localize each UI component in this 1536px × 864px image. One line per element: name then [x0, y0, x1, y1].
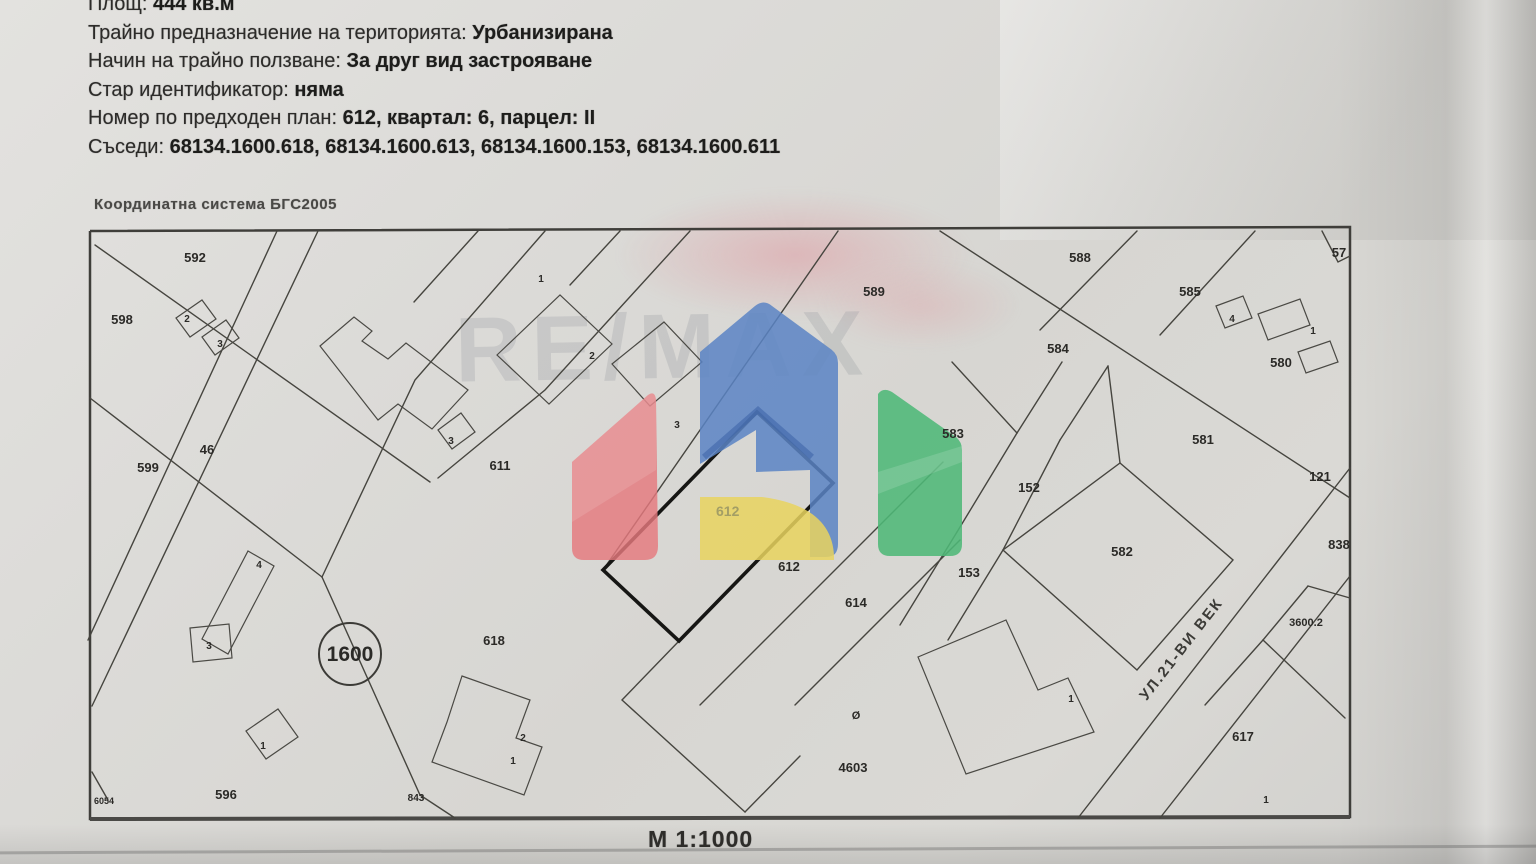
quarter-label-1600: 1600 [319, 623, 381, 685]
parcel-label: 6054 [94, 796, 114, 806]
parcel-label: 1 [1068, 694, 1074, 705]
svg-text:1600: 1600 [327, 643, 374, 666]
parcel-label: 2 [520, 733, 526, 744]
parcel-label: 3 [217, 339, 223, 350]
parcel-label: 1 [1263, 795, 1269, 806]
parcel-label: 581 [1192, 432, 1214, 447]
parcel-label: 57 [1332, 245, 1346, 260]
parcel-label: 1 [260, 741, 266, 752]
parcel-label: 614 [845, 595, 867, 610]
parcel-label: 612 [778, 559, 800, 574]
parcel-label: Ø [852, 710, 861, 722]
parcel-label: 596 [215, 787, 237, 802]
remax-houses-watermark [572, 303, 962, 561]
parcel-label: 3 [206, 641, 212, 652]
scanned-cadastral-document: Площ: 444 кв.мТрайно предназначение на т… [0, 0, 1536, 864]
parcel-label: 1 [1310, 326, 1316, 337]
parcel-label: 618 [483, 633, 505, 648]
parcel-label: 4 [1229, 314, 1235, 325]
parcel-label: 580 [1270, 355, 1292, 370]
parcel-label: 617 [1232, 729, 1254, 744]
parcel-label: 46 [200, 442, 214, 457]
parcel-label: 838 [1328, 537, 1350, 552]
parcel-label: 599 [137, 460, 159, 475]
parcel-label: 3 [448, 436, 454, 447]
parcel-label: 598 [111, 312, 133, 327]
parcel-label: 2 [184, 314, 190, 325]
parcel-label: 152 [1018, 480, 1040, 495]
parcel-label: 588 [1069, 250, 1091, 265]
parcel-label: 592 [184, 250, 206, 265]
street-name-label: УЛ.21-ВИ ВЕК [1136, 595, 1226, 704]
parcel-label: 1 [538, 274, 544, 285]
parcel-label: 1 [510, 756, 516, 767]
cadastral-map: 1600 УЛ.21-ВИ ВЕК 612 592598235994661131… [0, 0, 1536, 864]
parcel-label: 121 [1309, 469, 1331, 484]
parcel-label: 585 [1179, 284, 1201, 299]
parcel-label: 4 [256, 560, 262, 571]
parcel-label: 843 [408, 793, 425, 804]
parcel-label: 582 [1111, 544, 1133, 559]
parcel-label: 153 [958, 565, 980, 580]
parcel-label: 2 [589, 351, 595, 362]
parcel-label: 583 [942, 426, 964, 441]
parcel-label-faint: 612 [716, 503, 740, 519]
parcel-label: 4603 [839, 760, 868, 775]
parcel-label: 3600.2 [1289, 617, 1323, 629]
parcel-label: 584 [1047, 341, 1069, 356]
parcel-label: 3 [674, 420, 680, 431]
parcel-label: 611 [490, 458, 511, 473]
parcel-label: 589 [863, 284, 885, 299]
